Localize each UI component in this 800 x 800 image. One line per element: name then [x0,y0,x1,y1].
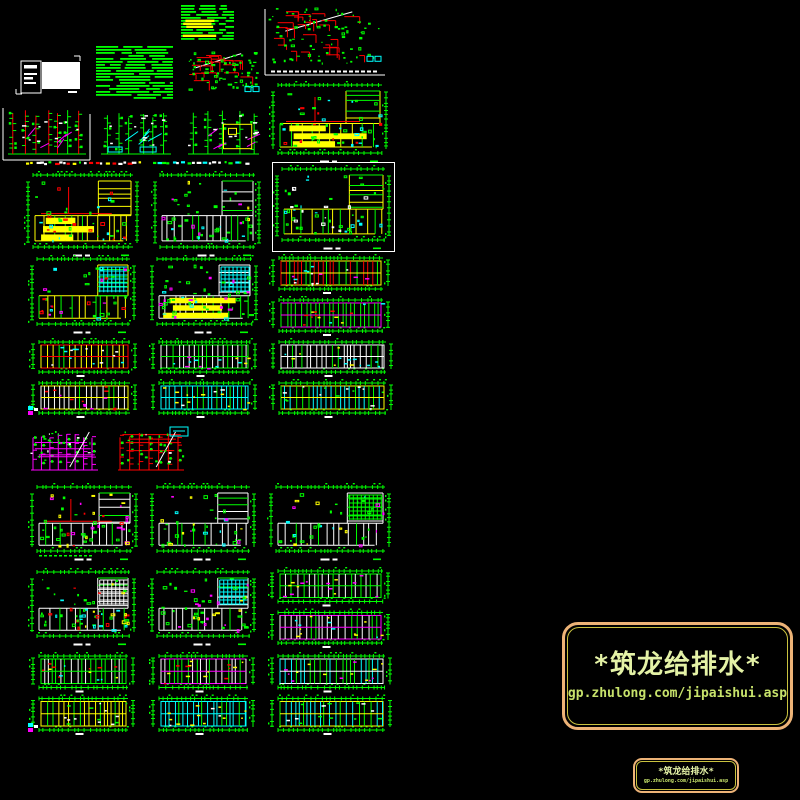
legend-strip-2 [152,160,252,167]
legend-strip-1 [25,160,143,167]
sheet-plan-e2 [147,252,262,336]
sheet-spec-notes [93,43,178,104]
sheet-plan-h3 [266,480,395,563]
sheet-axonometric-main [263,3,387,77]
stamp-url: gp.zhulong.com/jipaishui.asp [568,687,787,700]
sheet-strips-j3 [266,650,397,735]
sheet-schematic-red [110,424,194,477]
sheet-plan-top-right [268,78,392,165]
sheet-riser-3 [182,104,265,162]
cad-preview-canvas: *筑龙给排水* gp.zhulong.com/jipaishui.asp *筑龙… [0,0,800,800]
sheet-notes-table [178,2,239,43]
stamp-small-url: gp.zhulong.com/jipaishui.asp [644,779,728,784]
sheet-plan-e1 [27,252,140,336]
watermark-stamp-large-inner-border: *筑龙给排水* gp.zhulong.com/jipaishui.asp [567,627,788,725]
stamp-title: *筑龙给排水* [593,652,761,678]
sheet-riser-2 [95,106,177,162]
sheet-plan-i1 [27,565,140,648]
sheet-strips-f1 [27,336,142,418]
sheet-plan-h2 [147,480,260,563]
stamp-small-title: *筑龙给排水* [658,768,714,777]
sheet-plan-d1 [23,168,143,259]
sheet-axonometric-2 [180,47,265,102]
sheet-schematic-magenta [23,424,108,477]
sheet-strips-e3 [267,252,395,336]
watermark-stamp-large: *筑龙给排水* gp.zhulong.com/jipaishui.asp [562,622,793,730]
watermark-stamp-small-inner-border: *筑龙给排水* gp.zhulong.com/jipaishui.asp [636,761,736,790]
sheet-plan-i2 [147,565,260,648]
sheet-strips-i3 [266,565,395,648]
sheet-strips-f2 [147,336,262,418]
sheet-strips-j1 [27,650,140,735]
sheet-plan-d2 [150,168,265,259]
sheet-strips-j2 [147,650,260,735]
sheet-plan-h1 [27,480,142,563]
watermark-stamp-small: *筑龙给排水* gp.zhulong.com/jipaishui.asp [633,758,739,793]
sheet-cover-title-block [14,52,82,96]
sheet-riser-1 [2,104,92,162]
sheet-strips-f3 [267,336,398,418]
sheet-plan-d3 [272,162,395,252]
